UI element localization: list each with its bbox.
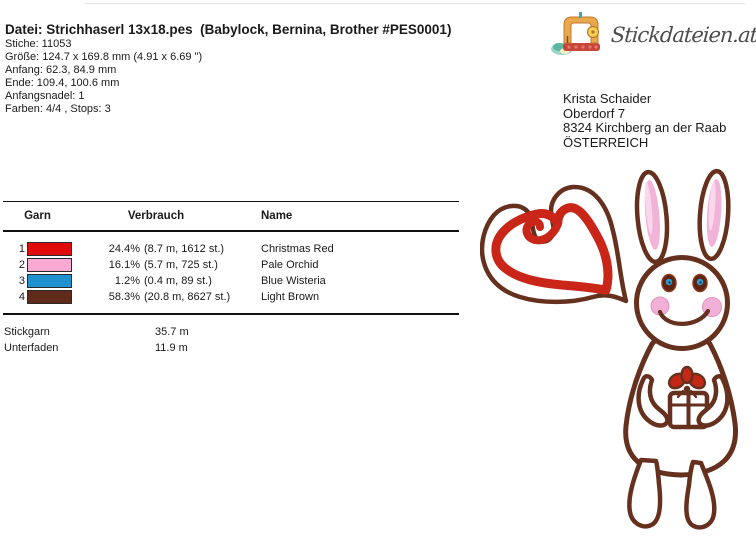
address-name: Krista Schaider xyxy=(563,92,726,107)
total-row: Unterfaden 11.9 m xyxy=(3,340,459,356)
embroidery-info-sheet: { "header": { "title": "Datei: Strichhas… xyxy=(0,0,756,540)
file-title: Datei: Strichhaserl 13x18.pes (Babylock,… xyxy=(5,21,451,38)
thread-usage-detail: (0.4 m, 89 st.) xyxy=(140,275,240,287)
table-body: 1 24.4% (8.7 m, 1612 st.) Christmas Red … xyxy=(3,232,459,315)
column-header-verbrauch: Verbrauch xyxy=(72,209,240,223)
thread-totals: Stickgarn 35.7 m Unterfaden 11.9 m xyxy=(3,324,459,356)
sewing-machine-icon xyxy=(549,12,607,58)
thread-usage-detail: (20.8 m, 8627 st.) xyxy=(140,291,240,303)
file-info-start: Anfang: 62.3, 84.9 mm xyxy=(5,64,451,77)
file-info-block: Datei: Strichhaserl 13x18.pes (Babylock,… xyxy=(5,21,451,116)
total-value: 11.9 m xyxy=(155,342,459,354)
thread-usage-percent: 24.4% xyxy=(72,243,140,255)
brand-name: Stickdateien.at xyxy=(610,23,756,47)
embroidery-design-preview xyxy=(480,160,756,540)
brand-logo: Stickdateien.at xyxy=(549,10,754,60)
thread-color-swatch xyxy=(27,258,72,272)
thread-color-name: Pale Orchid xyxy=(240,259,459,271)
thread-row: 1 24.4% (8.7 m, 1612 st.) Christmas Red xyxy=(3,241,459,257)
address-block: Krista Schaider Oberdorf 7 8324 Kirchber… xyxy=(563,92,726,150)
total-row: Stickgarn 35.7 m xyxy=(3,324,459,340)
bunny-figure xyxy=(626,170,736,527)
thread-number: 2 xyxy=(3,259,25,271)
bunny-left-ear xyxy=(634,171,671,263)
file-info-end: Ende: 109.4, 100.6 mm xyxy=(5,77,451,90)
thread-row: 2 16.1% (5.7 m, 725 st.) Pale Orchid xyxy=(3,257,459,273)
thread-usage-percent: 1.2% xyxy=(72,275,140,287)
address-country: ÖSTERREICH xyxy=(563,136,726,151)
heart-speech-bubble xyxy=(482,187,626,302)
thread-usage-percent: 58.3% xyxy=(72,291,140,303)
thread-color-swatch xyxy=(27,242,72,256)
thread-usage-percent: 16.1% xyxy=(72,259,140,271)
file-info-needle: Anfangsnadel: 1 xyxy=(5,90,451,103)
thread-color-swatch xyxy=(27,274,72,288)
thread-color-name: Blue Wisteria xyxy=(240,275,459,287)
thread-number: 3 xyxy=(3,275,25,287)
thread-number: 1 xyxy=(3,243,25,255)
thread-usage-detail: (5.7 m, 725 st.) xyxy=(140,259,240,271)
thread-row: 3 1.2% (0.4 m, 89 st.) Blue Wisteria xyxy=(3,273,459,289)
table-header-row: Garn Verbrauch Name xyxy=(3,202,459,232)
address-city: 8324 Kirchberg an der Raab xyxy=(563,121,726,136)
total-label: Stickgarn xyxy=(3,326,155,338)
bunny-right-ear xyxy=(697,170,731,260)
column-header-garn: Garn xyxy=(3,209,72,223)
column-header-name: Name xyxy=(240,209,459,223)
file-info-size: Größe: 124.7 x 169.8 mm (4.91 x 6.69 ") xyxy=(5,51,451,64)
file-info-colors: Farben: 4/4 , Stops: 3 xyxy=(5,103,451,116)
thread-row: 4 58.3% (20.8 m, 8627 st.) Light Brown xyxy=(3,289,459,305)
thread-color-name: Light Brown xyxy=(240,291,459,303)
thread-consumption-table: Garn Verbrauch Name 1 24.4% (8.7 m, 1612… xyxy=(3,201,459,356)
address-street: Oberdorf 7 xyxy=(563,107,726,122)
total-value: 35.7 m xyxy=(155,326,459,338)
file-info-stitches: Stiche: 11053 xyxy=(5,38,451,51)
thread-color-name: Christmas Red xyxy=(240,243,459,255)
thread-color-swatch xyxy=(27,290,72,304)
thread-number: 4 xyxy=(3,291,25,303)
page-top-hairline xyxy=(85,3,745,4)
total-label: Unterfaden xyxy=(3,342,155,354)
bunny-left-leg xyxy=(629,460,660,526)
thread-usage-detail: (8.7 m, 1612 st.) xyxy=(140,243,240,255)
